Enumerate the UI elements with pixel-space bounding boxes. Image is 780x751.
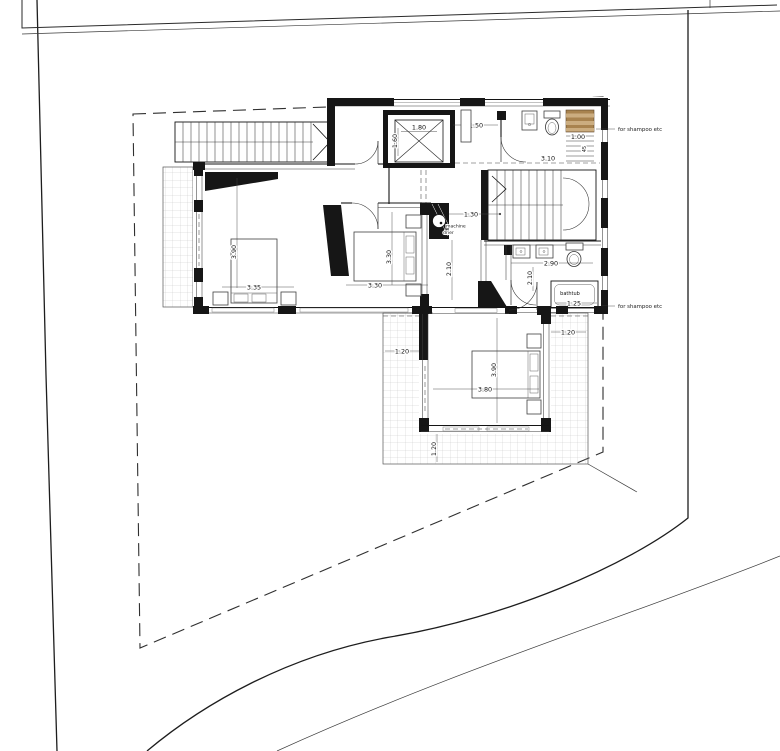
road-edge-lower [22, 11, 780, 34]
floor-plan-canvas: 1.80 1.60 1.50 [0, 0, 780, 751]
dim-landing-width: 3.10 [541, 155, 555, 163]
dim-shelf-depth: 45 [582, 146, 588, 152]
dim-bathtub-width: 1.25 [567, 300, 581, 308]
dim-closet-width: 1.30 [464, 211, 478, 219]
note-shampoo-top: for shampoo etc [618, 127, 662, 133]
washing-machine [433, 215, 446, 228]
staircase-main [481, 170, 596, 240]
sink-right [536, 245, 553, 258]
toilet-top-bowl [546, 119, 559, 135]
plot-boundary-left [37, 0, 57, 751]
nightstand [527, 400, 541, 414]
label-drier: drier [443, 230, 454, 236]
nightstand [527, 334, 541, 348]
dim-bedroom2-length: 3.30 [385, 250, 393, 264]
note-shampoo-bottom: for shampoo etc [618, 304, 662, 310]
hall-cabinet [461, 110, 471, 142]
nightstand [213, 292, 228, 305]
dresser [406, 284, 421, 296]
dim-terrace-right: 1.20 [561, 329, 575, 337]
toilet-tank [566, 243, 583, 250]
nightstand [281, 292, 296, 305]
road-edge-upper [22, 0, 777, 28]
toilet-top-tank [544, 111, 560, 118]
dim-shelf-width: 1.00 [571, 133, 585, 141]
dim-bathroom-width: 2.90 [544, 260, 558, 268]
dim-bedroom3-width: 3.80 [478, 386, 492, 394]
dim-elevator-width: 1.80 [412, 124, 426, 132]
dim-bedroom2-width: 3.30 [368, 282, 382, 290]
label-machine: machine [446, 224, 466, 230]
floor-plan-drawing: 1.80 1.60 1.50 [0, 0, 780, 751]
dim-terrace-bottom: 1.20 [430, 442, 438, 456]
nightstand [406, 215, 421, 228]
terrace-corner-tick [588, 464, 637, 492]
dim-bedroom3-length: 3.90 [490, 363, 498, 377]
dim-corridor-width: 2.10 [445, 262, 453, 276]
dim-bedroom1-width: 3.35 [247, 284, 261, 292]
dim-bathroom-depth: 2.10 [526, 271, 534, 285]
road-curve-outer [277, 556, 780, 751]
staircase-top-run [175, 122, 332, 162]
sink-left [513, 245, 530, 258]
label-bathtub: bathtub [560, 291, 580, 297]
toilet-bowl [567, 252, 581, 267]
terrace-upper-left [163, 167, 193, 307]
dim-terrace-left: 1.20 [395, 348, 409, 356]
dim-bedroom1-length: 3.90 [230, 245, 238, 259]
dim-elevator-depth: 1.60 [391, 134, 399, 148]
